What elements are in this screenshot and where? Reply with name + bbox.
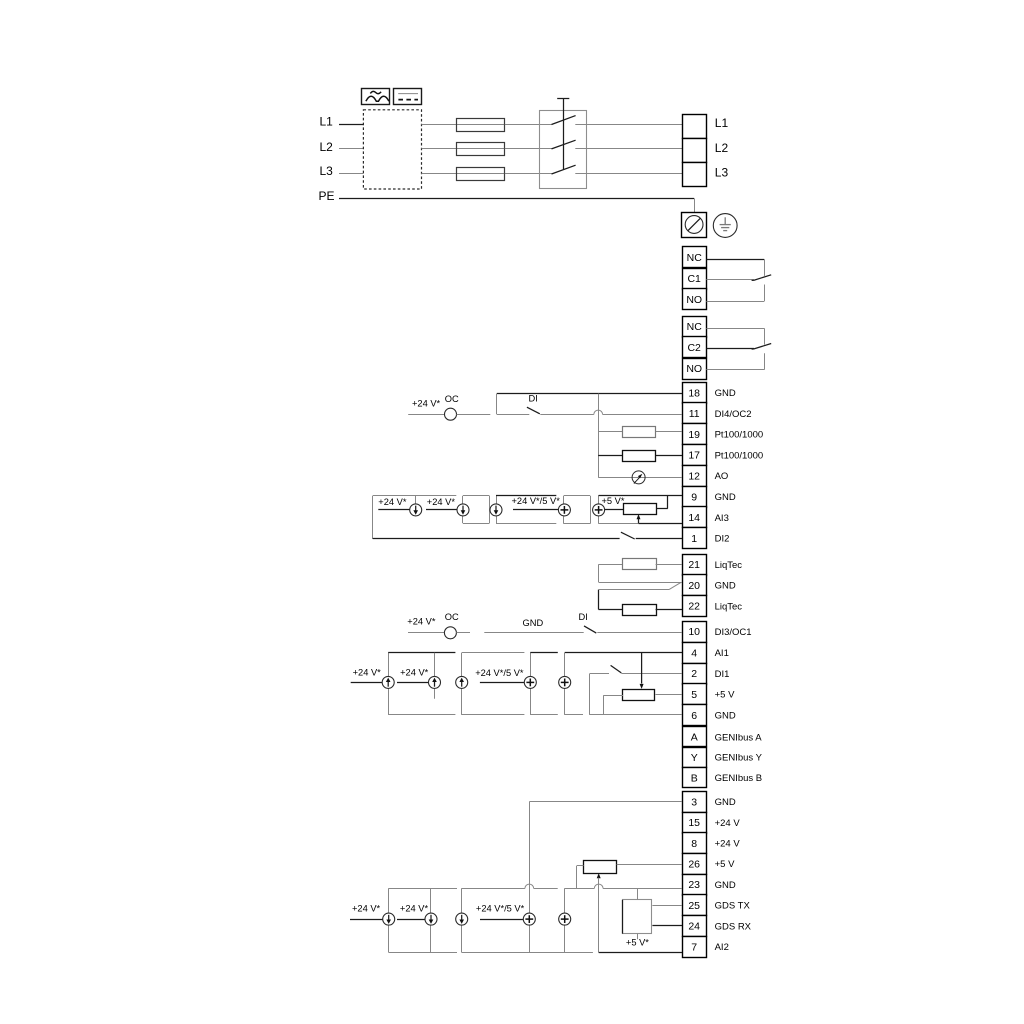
- svg-text:GND: GND: [715, 711, 736, 722]
- svg-text:+24 V*/5 V*: +24 V*/5 V*: [475, 668, 524, 678]
- svg-text:AI2: AI2: [715, 942, 729, 953]
- svg-text:GDS TX: GDS TX: [715, 901, 751, 912]
- svg-text:+24 V*: +24 V*: [400, 668, 429, 678]
- svg-text:Pt100/1000: Pt100/1000: [715, 430, 764, 441]
- svg-text:23: 23: [688, 879, 700, 891]
- svg-text:GENIbus B: GENIbus B: [715, 773, 763, 784]
- svg-text:+24 V*/5 V*: +24 V*/5 V*: [512, 496, 561, 506]
- svg-text:14: 14: [688, 512, 700, 524]
- svg-text:NO: NO: [686, 363, 702, 375]
- svg-text:AO: AO: [715, 471, 729, 482]
- svg-text:Pt100/1000: Pt100/1000: [715, 450, 764, 461]
- svg-text:+24 V*/5 V*: +24 V*/5 V*: [476, 904, 525, 914]
- svg-text:19: 19: [688, 429, 700, 441]
- svg-text:DI4/OC2: DI4/OC2: [715, 409, 752, 420]
- svg-text:+24 V*: +24 V*: [427, 497, 456, 507]
- svg-text:15: 15: [688, 817, 700, 829]
- svg-text:DI1: DI1: [715, 669, 730, 680]
- svg-text:17: 17: [688, 450, 700, 462]
- svg-text:+24 V*: +24 V*: [412, 398, 441, 408]
- svg-text:GND: GND: [715, 581, 736, 592]
- svg-text:GND: GND: [715, 388, 736, 399]
- svg-text:12: 12: [688, 471, 700, 483]
- svg-text:GND: GND: [715, 797, 736, 808]
- svg-text:11: 11: [689, 408, 700, 420]
- svg-text:L1: L1: [320, 115, 334, 129]
- svg-text:24: 24: [688, 921, 700, 933]
- svg-text:22: 22: [688, 601, 700, 613]
- svg-text:+24 V*: +24 V*: [352, 904, 381, 914]
- svg-text:B: B: [691, 772, 698, 784]
- svg-text:AI3: AI3: [715, 513, 729, 524]
- svg-text:+24 V*: +24 V*: [400, 904, 429, 914]
- svg-text:25: 25: [688, 900, 700, 912]
- svg-text:L1: L1: [715, 116, 729, 130]
- svg-text:8: 8: [691, 838, 697, 850]
- svg-text:+24 V: +24 V: [715, 839, 741, 850]
- svg-text:5: 5: [691, 689, 697, 701]
- svg-text:+5 V*: +5 V*: [602, 496, 625, 506]
- svg-text:GENIbus A: GENIbus A: [715, 732, 763, 743]
- svg-text:6: 6: [691, 710, 697, 722]
- svg-text:+24 V: +24 V: [715, 818, 741, 829]
- svg-text:L3: L3: [320, 164, 334, 178]
- svg-text:NC: NC: [687, 321, 703, 333]
- svg-text:3: 3: [691, 796, 697, 808]
- svg-text:C2: C2: [687, 342, 701, 354]
- svg-text:L3: L3: [715, 166, 729, 180]
- svg-text:OC: OC: [445, 612, 459, 622]
- svg-text:+5 V: +5 V: [715, 859, 735, 870]
- svg-text:L2: L2: [320, 140, 334, 154]
- svg-text:PE: PE: [319, 189, 335, 203]
- svg-text:21: 21: [688, 559, 700, 571]
- svg-text:NC: NC: [687, 252, 703, 264]
- svg-text:+24 V*: +24 V*: [353, 668, 382, 678]
- svg-text:20: 20: [688, 580, 700, 592]
- svg-text:LiqTec: LiqTec: [715, 560, 743, 571]
- svg-text:+24 V*: +24 V*: [378, 497, 407, 507]
- svg-text:GENIbus Y: GENIbus Y: [715, 753, 763, 764]
- svg-text:+24 V*: +24 V*: [407, 617, 436, 627]
- svg-text:2: 2: [691, 668, 697, 680]
- svg-text:GND: GND: [715, 880, 736, 891]
- svg-text:DI3/OC1: DI3/OC1: [715, 627, 752, 638]
- svg-text:OC: OC: [445, 394, 459, 404]
- svg-text:GND: GND: [523, 618, 544, 628]
- svg-text:10: 10: [688, 626, 700, 638]
- svg-text:AI1: AI1: [715, 648, 729, 659]
- svg-text:DI: DI: [529, 394, 538, 404]
- svg-text:18: 18: [688, 387, 700, 399]
- svg-text:26: 26: [688, 859, 700, 871]
- svg-text:1: 1: [691, 533, 697, 545]
- svg-text:GDS RX: GDS RX: [715, 921, 752, 932]
- svg-text:DI2: DI2: [715, 534, 730, 545]
- svg-text:C1: C1: [687, 273, 701, 285]
- svg-text:L2: L2: [715, 141, 729, 155]
- svg-text:9: 9: [691, 491, 697, 503]
- svg-text:Y: Y: [691, 752, 698, 764]
- svg-text:4: 4: [691, 647, 697, 659]
- svg-text:DI: DI: [579, 612, 588, 622]
- svg-text:LiqTec: LiqTec: [715, 601, 743, 612]
- svg-text:7: 7: [691, 941, 697, 953]
- svg-text:GND: GND: [715, 492, 736, 503]
- svg-text:+5 V*: +5 V*: [626, 938, 649, 948]
- svg-text:+5 V: +5 V: [715, 690, 735, 701]
- svg-text:NO: NO: [686, 294, 702, 306]
- svg-text:A: A: [691, 732, 698, 744]
